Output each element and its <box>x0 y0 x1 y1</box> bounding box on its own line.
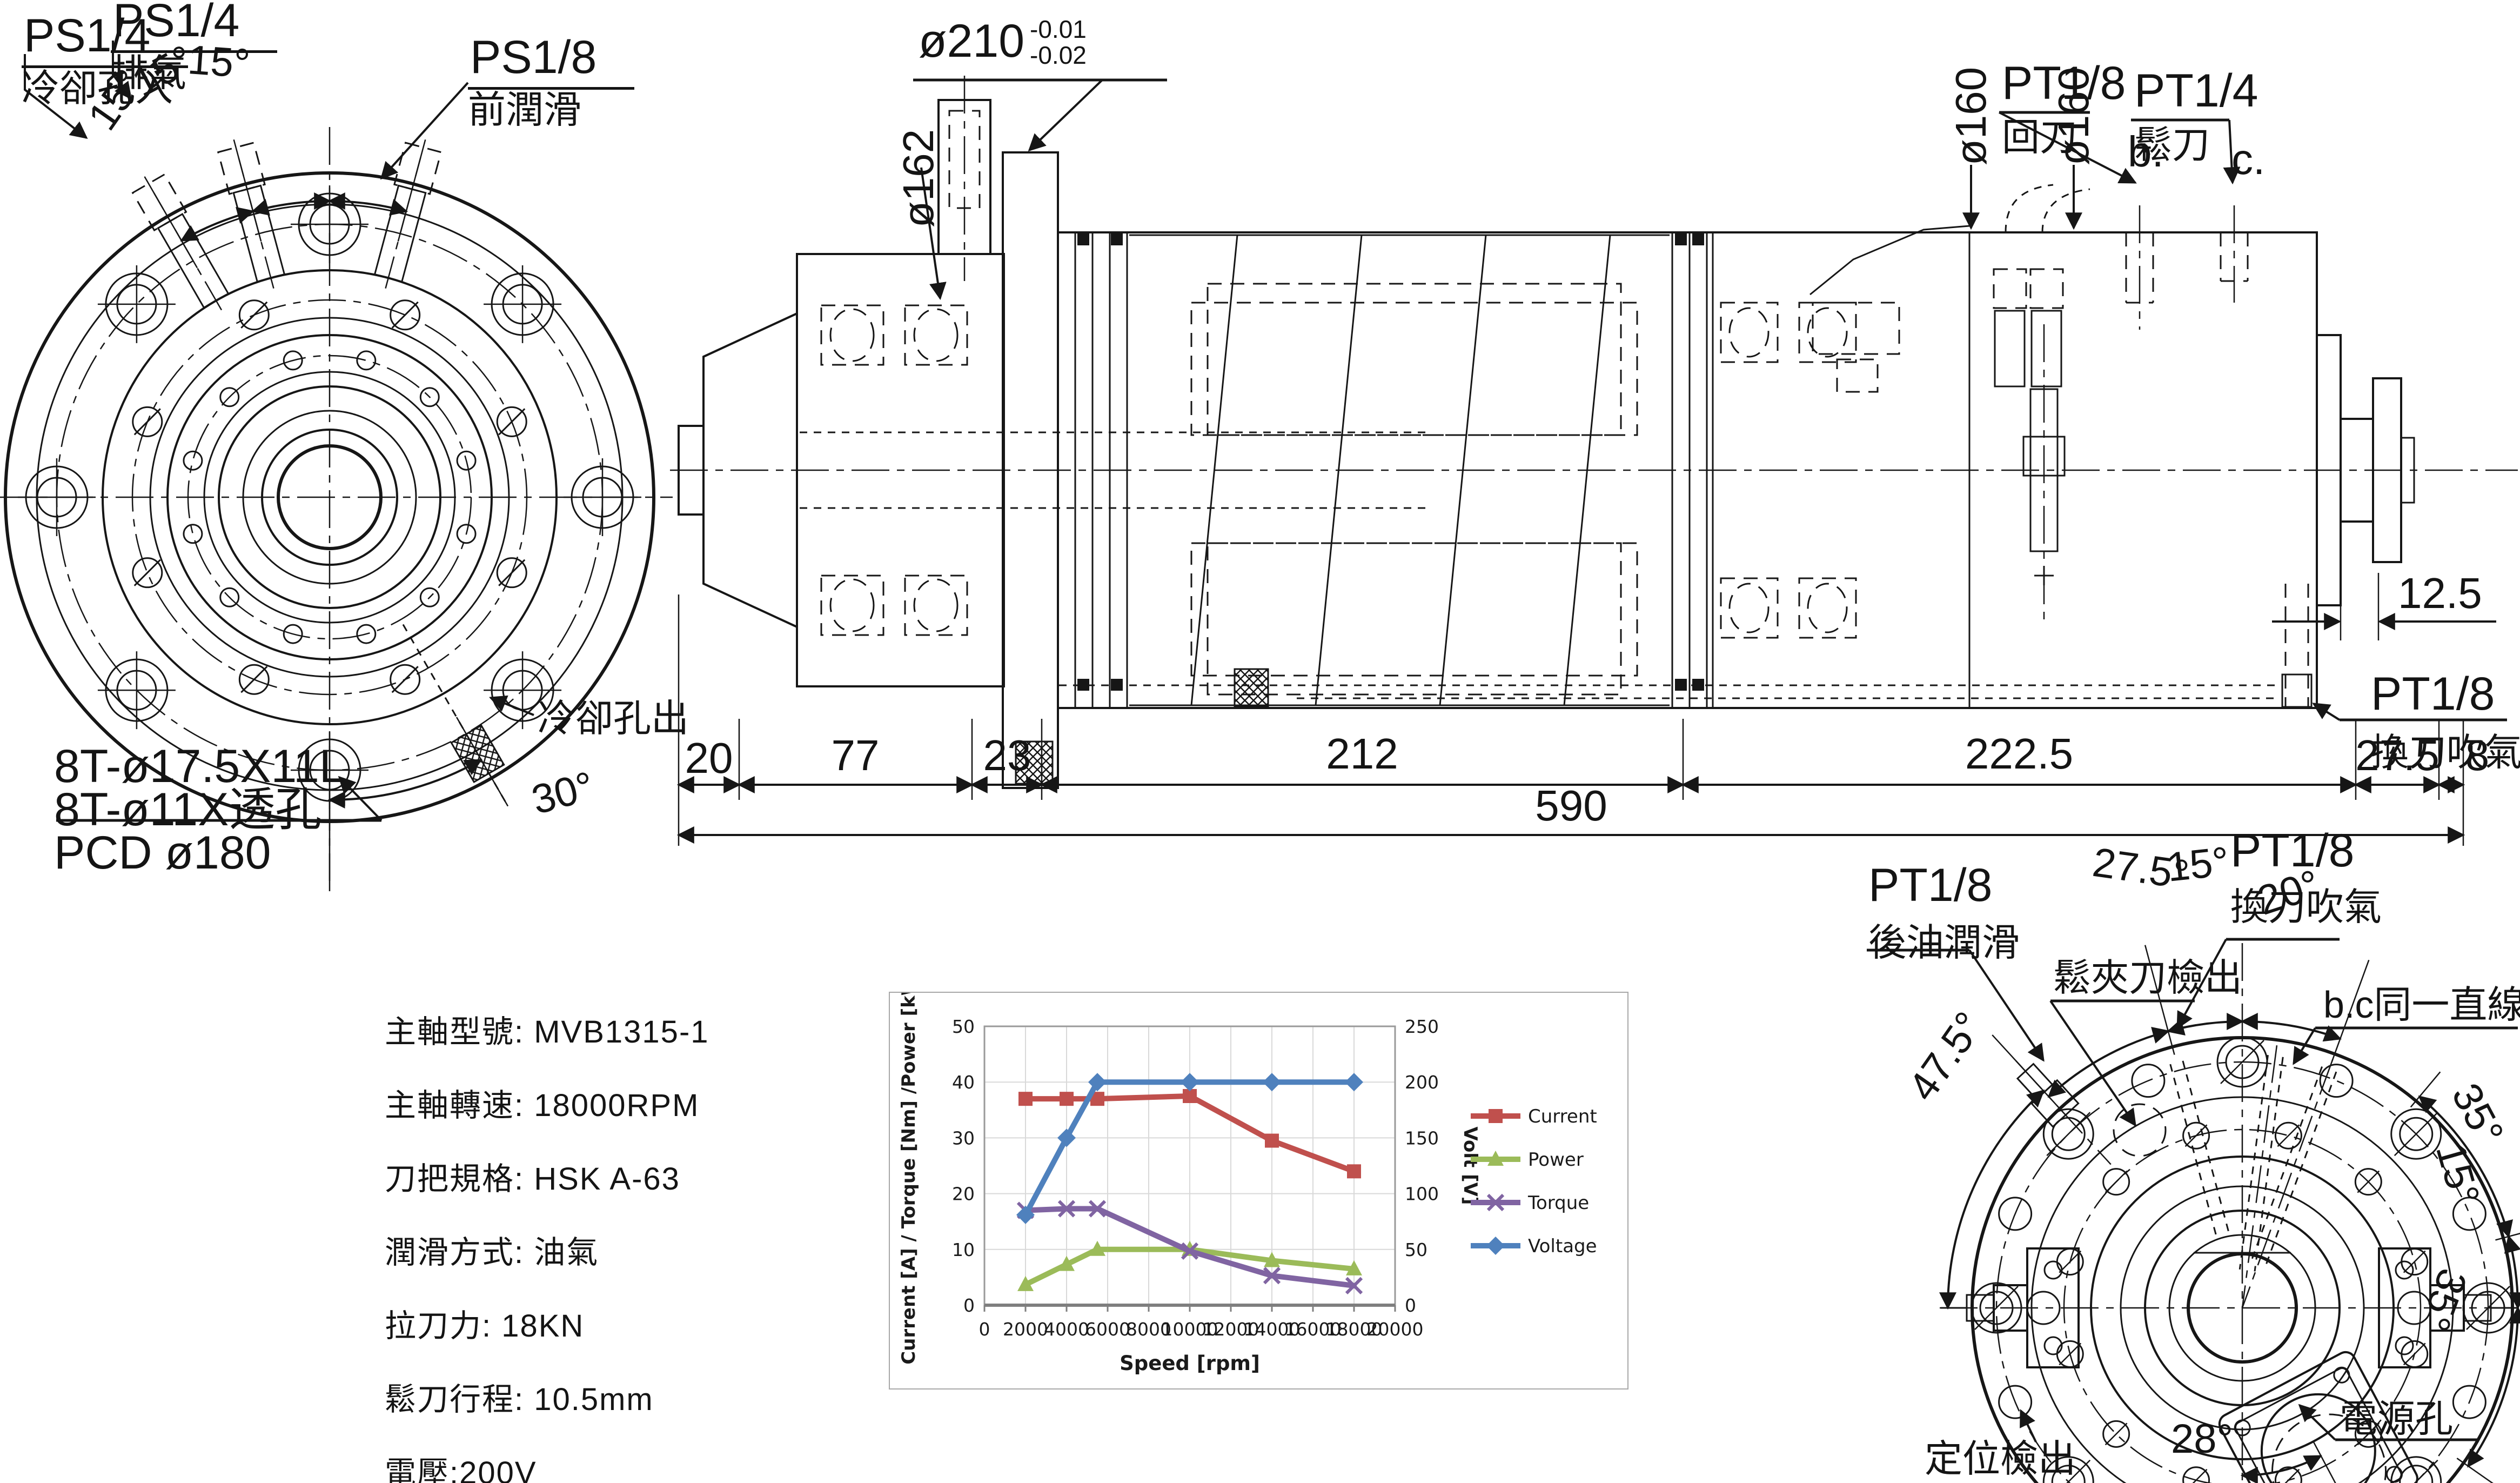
tol-upper: -0.01 <box>1030 16 1087 42</box>
svg-text:10: 10 <box>952 1239 975 1260</box>
svg-text:50: 50 <box>1405 1239 1427 1260</box>
svg-text:100: 100 <box>1405 1184 1439 1205</box>
front-angle-15c: 15° <box>186 38 251 86</box>
dia210-value: ø210 <box>919 15 1024 67</box>
dia210-label: ø210-0.01-0.02 <box>919 16 1087 69</box>
spec-voltage: 電壓:200V <box>385 1447 709 1483</box>
svg-text:Speed [rpm]: Speed [rpm] <box>1120 1352 1260 1375</box>
port-c-mark: c. <box>2231 136 2265 183</box>
dim-212: 212 <box>1326 731 1398 777</box>
pcd-label: PCD ø180 <box>54 828 271 878</box>
svg-text:4000: 4000 <box>1044 1319 1089 1340</box>
dia162-label: ø162 <box>895 129 942 228</box>
dia210-tolerance: -0.01-0.02 <box>1030 16 1087 69</box>
dim-8: 8 <box>2465 732 2490 779</box>
svg-text:0: 0 <box>979 1319 990 1340</box>
port-size: PT1/4 <box>2134 65 2258 117</box>
spec-draw-force: 拉刀力: 18KN <box>385 1300 709 1346</box>
spec-list: 主軸型號: MVB1315-1 主軸轉速: 18000RPM 刀把規格: HSK… <box>385 1006 709 1483</box>
tol-lower: -0.02 <box>1030 42 1087 68</box>
spec-release-stroke: 鬆刀行程: 10.5mm <box>385 1374 709 1419</box>
front-port-front-lube-label: PS1/8 前潤滑 <box>468 32 634 130</box>
spec-model: 主軸型號: MVB1315-1 <box>385 1006 709 1052</box>
svg-text:Voltage: Voltage <box>1528 1235 1597 1257</box>
svg-text:Torque: Torque <box>1527 1192 1589 1214</box>
port-function: 前潤滑 <box>468 90 634 131</box>
port-size: PT1/8 <box>1868 859 1992 911</box>
rear-angle-15-top: 15° <box>2165 839 2231 890</box>
dia160-b-label: ø160 <box>1948 67 1994 165</box>
svg-text:40: 40 <box>952 1072 975 1093</box>
svg-text:Volt [V]: Volt [V] <box>1459 1127 1481 1205</box>
port-size: PS1/8 <box>468 32 634 90</box>
position-detect-label: 定位檢出 <box>1925 1439 2076 1480</box>
spec-speed: 主軸轉速: 18000RPM <box>385 1080 709 1125</box>
svg-text:Power: Power <box>1528 1149 1584 1171</box>
port-size: PT1/8 <box>2371 668 2495 720</box>
dia160-c-label: ø160 <box>2050 67 2097 165</box>
coolant-out-label: 冷卻孔出 <box>538 698 689 739</box>
dim-23: 23 <box>983 732 1031 779</box>
svg-text:150: 150 <box>1405 1127 1439 1148</box>
svg-text:6000: 6000 <box>1085 1319 1130 1340</box>
svg-text:50: 50 <box>952 1016 975 1037</box>
rear-angle-28: 28° <box>2171 1417 2233 1461</box>
rear-lube-label: PT1/8 後油潤滑 <box>1868 860 2020 963</box>
svg-text:20000: 20000 <box>1367 1319 1424 1340</box>
performance-chart-panel: 0200040006000800010000120001400016000180… <box>889 992 1628 1390</box>
port-function: 後油潤滑 <box>1868 923 2020 964</box>
spindle-drawing-sheet: 0200040006000800010000120001400016000180… <box>0 0 2520 1483</box>
power-hole-label: 電源孔 <box>2340 1399 2453 1440</box>
bc-alignment-note: b.c同一直線 <box>2323 985 2520 1026</box>
dim-20: 20 <box>685 735 733 781</box>
svg-text:0: 0 <box>963 1295 975 1316</box>
dim-77: 77 <box>832 732 880 779</box>
svg-text:2000: 2000 <box>1003 1319 1048 1340</box>
side-view <box>670 76 2518 846</box>
clamp-detect-label: 鬆夾刀檢出 <box>2053 958 2242 999</box>
spec-tool-holder: 刀把規格: HSK A-63 <box>385 1153 709 1199</box>
svg-text:200: 200 <box>1405 1072 1439 1093</box>
svg-text:Current [A] / Torque [Nm] /Pow: Current [A] / Torque [Nm] /Power [kW] <box>898 993 920 1365</box>
svg-text:20: 20 <box>952 1184 975 1205</box>
performance-chart: 0200040006000800010000120001400016000180… <box>890 993 1627 1388</box>
dim-12-5: 12.5 <box>2398 570 2482 617</box>
svg-text:Current: Current <box>1528 1106 1597 1127</box>
dim-222-5: 222.5 <box>1965 731 2073 777</box>
svg-text:250: 250 <box>1405 1016 1439 1037</box>
dim-27-5: 27.5 <box>2355 732 2439 779</box>
svg-text:0: 0 <box>1405 1295 1416 1316</box>
svg-text:30: 30 <box>952 1127 975 1148</box>
dim-590: 590 <box>1535 783 1607 829</box>
spec-lubrication: 潤滑方式: 油氣 <box>385 1227 709 1272</box>
